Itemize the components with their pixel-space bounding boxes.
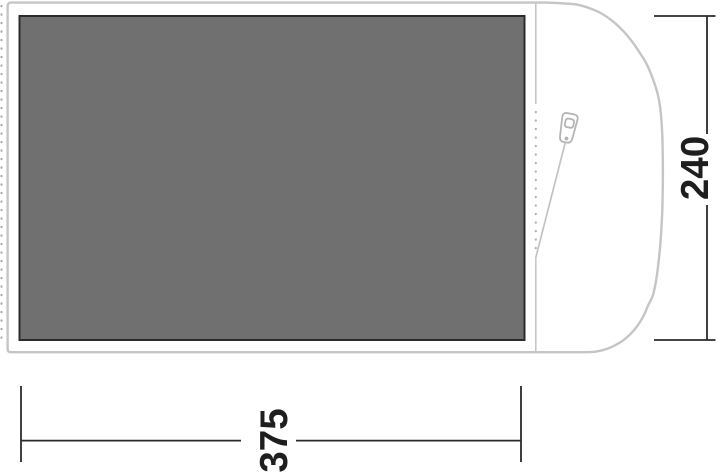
svg-text:240: 240 — [674, 136, 717, 200]
svg-text:375: 375 — [253, 408, 296, 472]
